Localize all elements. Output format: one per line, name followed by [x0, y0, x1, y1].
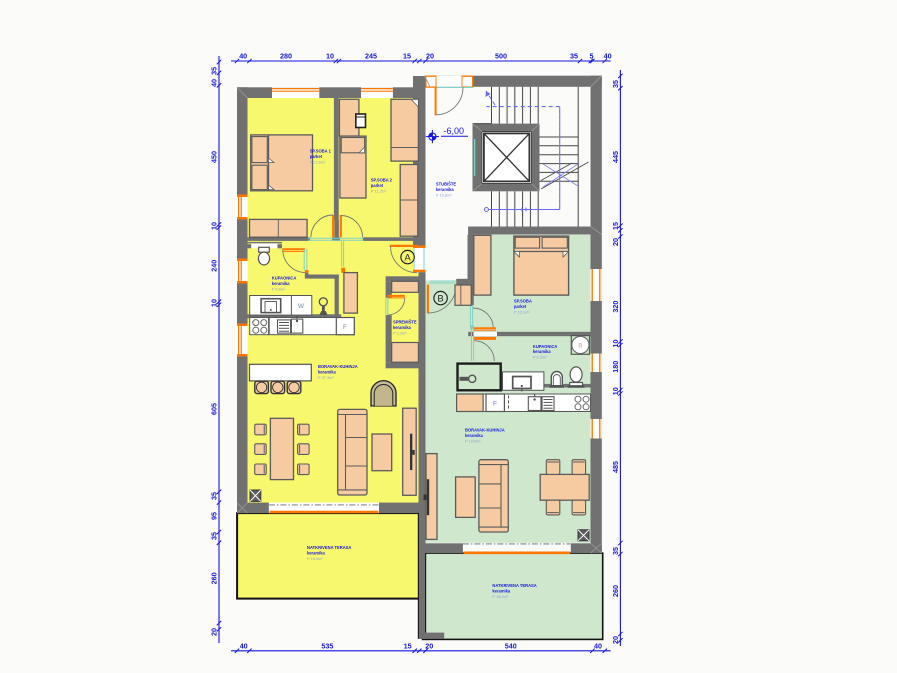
svg-text:15: 15: [611, 222, 620, 230]
svg-text:parket: parket: [371, 183, 384, 188]
svg-text:P 16,0m²: P 16,0m²: [307, 556, 323, 561]
svg-text:245: 245: [365, 52, 377, 61]
svg-text:20: 20: [210, 628, 219, 636]
svg-text:10: 10: [326, 52, 334, 61]
svg-text:15: 15: [404, 641, 412, 650]
svg-text:320: 320: [611, 301, 620, 313]
svg-text:P 18,0m²: P 18,0m²: [465, 438, 481, 443]
svg-text:40: 40: [239, 52, 247, 61]
svg-text:15: 15: [403, 52, 411, 61]
svg-text:95: 95: [210, 512, 219, 520]
svg-text:260: 260: [611, 585, 620, 597]
svg-text:keramika: keramika: [492, 588, 510, 593]
svg-text:20: 20: [611, 636, 620, 644]
svg-text:240: 240: [210, 260, 219, 272]
svg-text:BORAVAK-KUHINJA: BORAVAK-KUHINJA: [318, 364, 358, 369]
svg-text:485: 485: [611, 461, 620, 473]
svg-text:10: 10: [611, 387, 620, 395]
svg-text:SP.SOBA: SP.SOBA: [514, 299, 532, 304]
svg-text:KUPAONICA: KUPAONICA: [533, 344, 558, 349]
svg-text:NATKRIVENA TERASA: NATKRIVENA TERASA: [492, 583, 536, 588]
svg-text:P 6,3m²: P 6,3m²: [533, 355, 547, 360]
svg-text:B: B: [578, 344, 582, 350]
svg-text:40: 40: [594, 641, 602, 650]
svg-text:605: 605: [210, 403, 219, 415]
svg-text:10: 10: [611, 340, 620, 348]
svg-text:P 11,2m²: P 11,2m²: [371, 188, 387, 193]
svg-text:P 12,2m²: P 12,2m²: [514, 309, 530, 314]
svg-text:540: 540: [505, 641, 517, 650]
svg-text:10: 10: [210, 299, 219, 307]
svg-text:40: 40: [210, 79, 219, 87]
svg-text:P 5,6m²: P 5,6m²: [272, 286, 286, 291]
svg-text:35: 35: [611, 80, 620, 88]
svg-text:535: 535: [321, 641, 333, 650]
svg-text:40: 40: [604, 52, 612, 61]
svg-text:20: 20: [611, 238, 620, 246]
svg-text:40: 40: [240, 641, 248, 650]
svg-text:35: 35: [570, 52, 578, 61]
svg-text:P 37,3m²: P 37,3m²: [318, 375, 334, 380]
svg-text:SPREMIŠTE: SPREMIŠTE: [393, 320, 417, 325]
svg-text:keramika: keramika: [318, 369, 336, 374]
svg-text:BORAVAK-KUHINJA: BORAVAK-KUHINJA: [465, 428, 505, 433]
svg-text:-6,00: -6,00: [444, 126, 465, 136]
svg-text:keramika: keramika: [393, 325, 411, 330]
svg-text:20: 20: [425, 641, 433, 650]
svg-text:B: B: [437, 294, 443, 305]
svg-text:P 15,9m²: P 15,9m²: [492, 594, 508, 599]
svg-text:445: 445: [611, 151, 620, 163]
svg-text:keramika: keramika: [272, 281, 290, 286]
svg-text:SP.SOBA 2: SP.SOBA 2: [371, 178, 393, 183]
svg-text:280: 280: [280, 52, 292, 61]
svg-text:10: 10: [210, 222, 219, 230]
svg-text:500: 500: [495, 52, 507, 61]
svg-text:NATKRIVENA TERASA: NATKRIVENA TERASA: [307, 545, 351, 550]
svg-text:parket: parket: [514, 304, 527, 309]
svg-text:5: 5: [590, 52, 594, 61]
svg-text:20: 20: [426, 52, 434, 61]
svg-text:35: 35: [611, 547, 620, 555]
svg-text:F: F: [493, 401, 497, 408]
svg-text:A: A: [404, 253, 411, 264]
svg-text:P 15,8m²: P 15,8m²: [436, 192, 452, 197]
svg-text:35: 35: [210, 492, 219, 500]
svg-text:keramika: keramika: [533, 349, 551, 354]
svg-text:F: F: [343, 324, 347, 331]
svg-text:SP.SOBA 1: SP.SOBA 1: [310, 149, 332, 154]
svg-text:35: 35: [210, 532, 219, 540]
svg-text:W: W: [298, 303, 305, 310]
svg-text:P 2,2m²: P 2,2m²: [393, 330, 407, 335]
svg-text:STUBIŠTE: STUBIŠTE: [436, 182, 457, 187]
svg-text:KUPAONICA: KUPAONICA: [272, 276, 297, 281]
svg-text:180: 180: [611, 361, 620, 373]
svg-text:P 12,6m²: P 12,6m²: [310, 159, 326, 164]
svg-text:keramika: keramika: [307, 550, 325, 555]
svg-text:260: 260: [210, 572, 219, 584]
svg-text:keramika: keramika: [465, 433, 483, 438]
svg-text:35: 35: [210, 67, 219, 75]
svg-text:keramika: keramika: [436, 187, 454, 192]
svg-text:450: 450: [210, 151, 219, 163]
svg-text:parket: parket: [310, 154, 323, 159]
